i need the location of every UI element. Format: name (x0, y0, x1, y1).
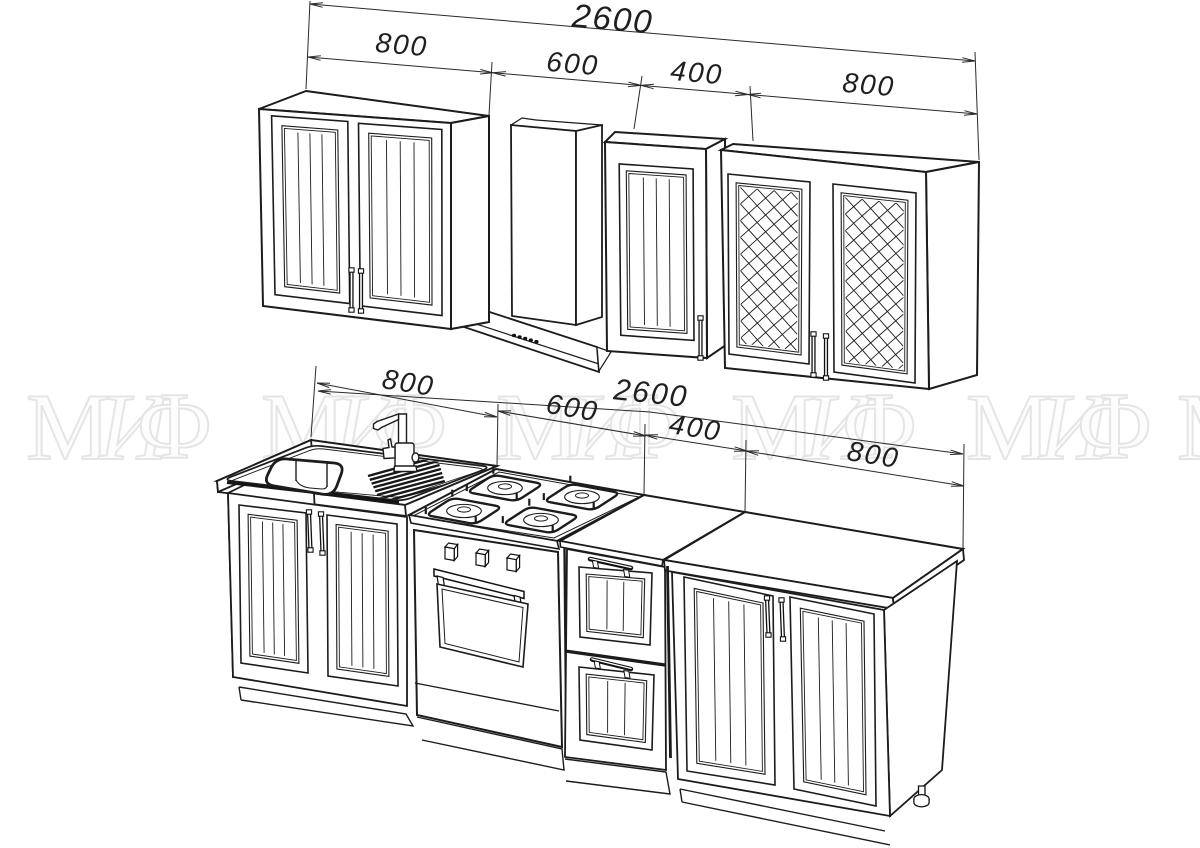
svg-text:М: М (1177, 374, 1200, 480)
svg-text:800: 800 (374, 27, 429, 62)
svg-text:М: М (731, 374, 815, 480)
svg-text:М: М (966, 374, 1050, 480)
svg-text:2600: 2600 (570, 0, 655, 41)
svg-text:М: М (496, 374, 580, 480)
svg-text:Ф: Ф (137, 373, 212, 479)
svg-text:600: 600 (545, 46, 600, 81)
svg-text:400: 400 (669, 55, 724, 90)
svg-text:М: М (26, 374, 110, 480)
svg-text:800: 800 (841, 67, 896, 102)
svg-text:Ф: Ф (1077, 373, 1152, 479)
